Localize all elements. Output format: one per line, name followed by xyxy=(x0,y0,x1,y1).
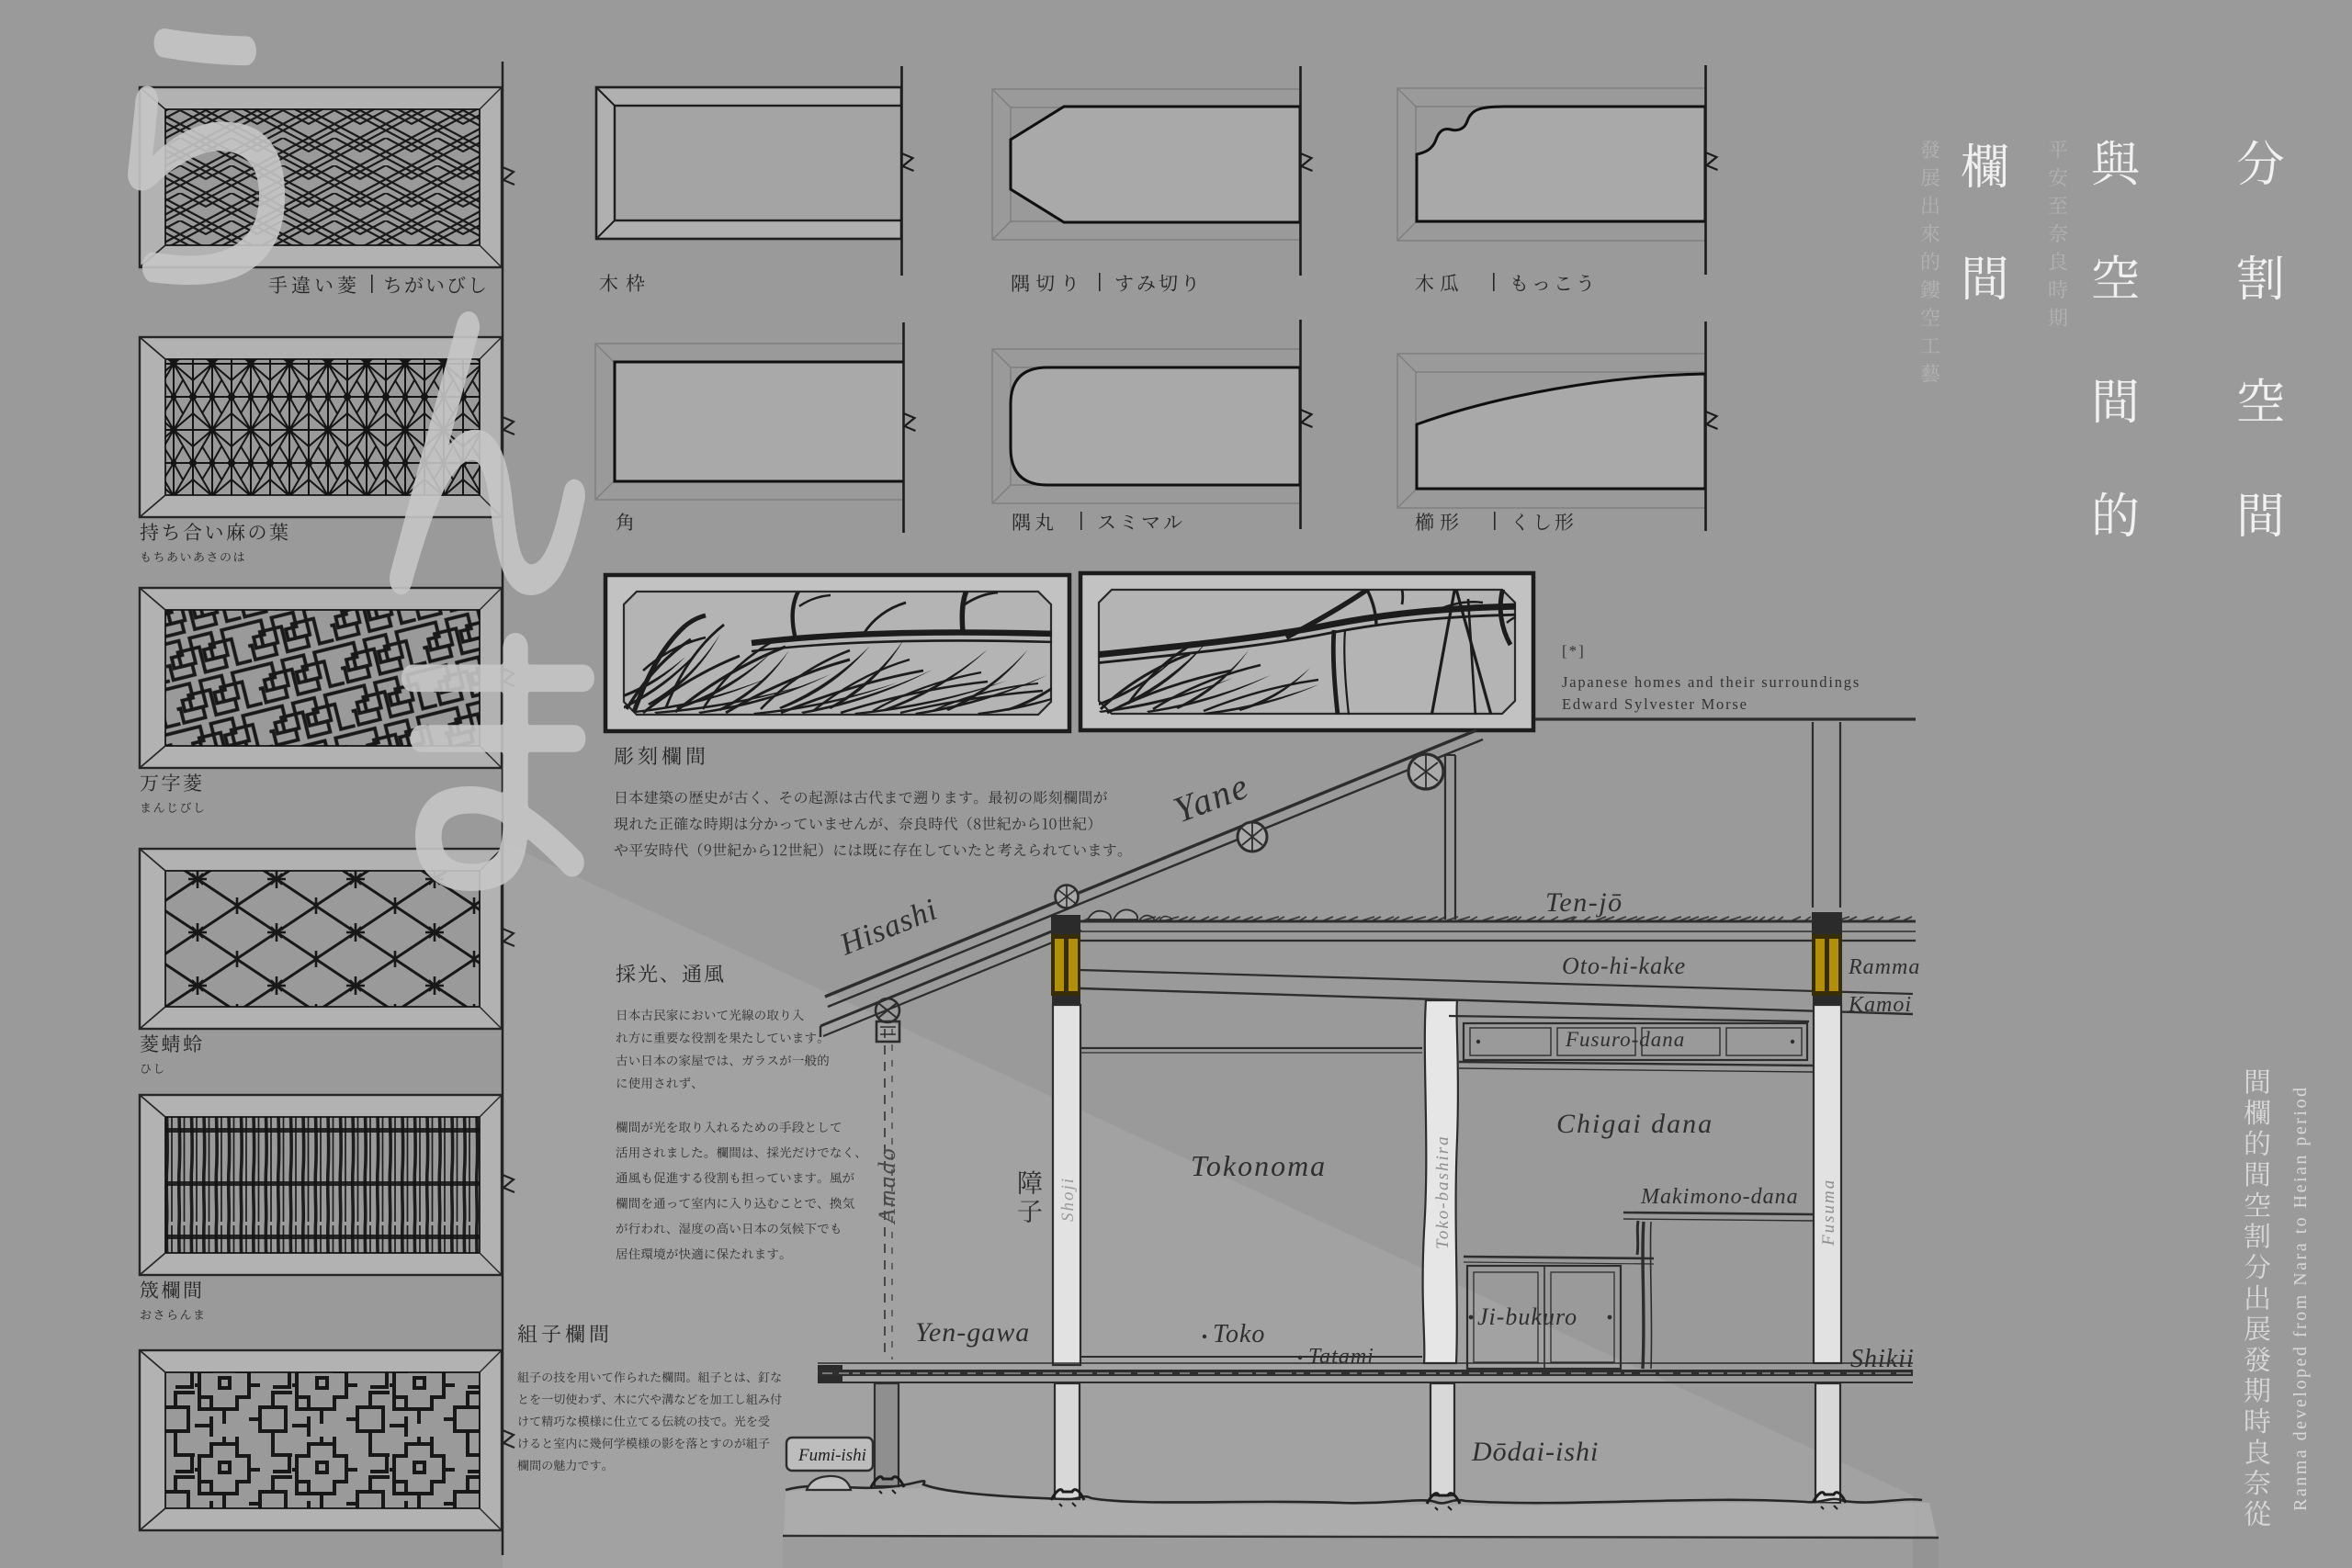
svg-text:Fusuma: Fusuma xyxy=(1819,1179,1838,1247)
svg-text:Toko-bashira: Toko-bashira xyxy=(1433,1134,1453,1249)
svg-text:Tokonoma: Tokonoma xyxy=(1191,1149,1327,1182)
svg-text:Ten-jō: Ten-jō xyxy=(1545,887,1623,918)
svg-text:Shikii: Shikii xyxy=(1850,1345,1915,1373)
svg-text:Kamoi: Kamoi xyxy=(1848,993,1912,1017)
svg-text:Japanese homes and their surro: Japanese homes and their surroundings xyxy=(1562,673,1860,691)
svg-text:Amado: Amado xyxy=(874,1146,900,1225)
svg-text:Ramma: Ramma xyxy=(1848,955,1920,979)
svg-text:Tatami: Tatami xyxy=(1308,1345,1374,1369)
svg-text:Oto-hi-kake: Oto-hi-kake xyxy=(1562,953,1686,979)
svg-text:Shoji: Shoji xyxy=(1058,1177,1078,1222)
svg-text:Fumi-ishi: Fumi-ishi xyxy=(797,1446,866,1465)
svg-text:Ji-bukuro: Ji-bukuro xyxy=(1477,1303,1577,1330)
svg-text:Ranma developed from Nara to: Ranma developed from Nara to Heian perio… xyxy=(2290,1086,2311,1511)
svg-text:Yen-gawa: Yen-gawa xyxy=(915,1317,1030,1348)
svg-text:[*]: [*] xyxy=(1562,642,1586,660)
svg-text:Toko: Toko xyxy=(1213,1320,1265,1348)
svg-text:Dōdai-ishi: Dōdai-ishi xyxy=(1471,1437,1599,1467)
svg-text:Edward Sylvester Morse: Edward Sylvester Morse xyxy=(1562,695,1748,713)
svg-text:Makimono-dana: Makimono-dana xyxy=(1640,1185,1799,1209)
svg-text:Chigai dana: Chigai dana xyxy=(1556,1109,1713,1139)
svg-text:Fusuro-dana: Fusuro-dana xyxy=(1565,1028,1685,1051)
